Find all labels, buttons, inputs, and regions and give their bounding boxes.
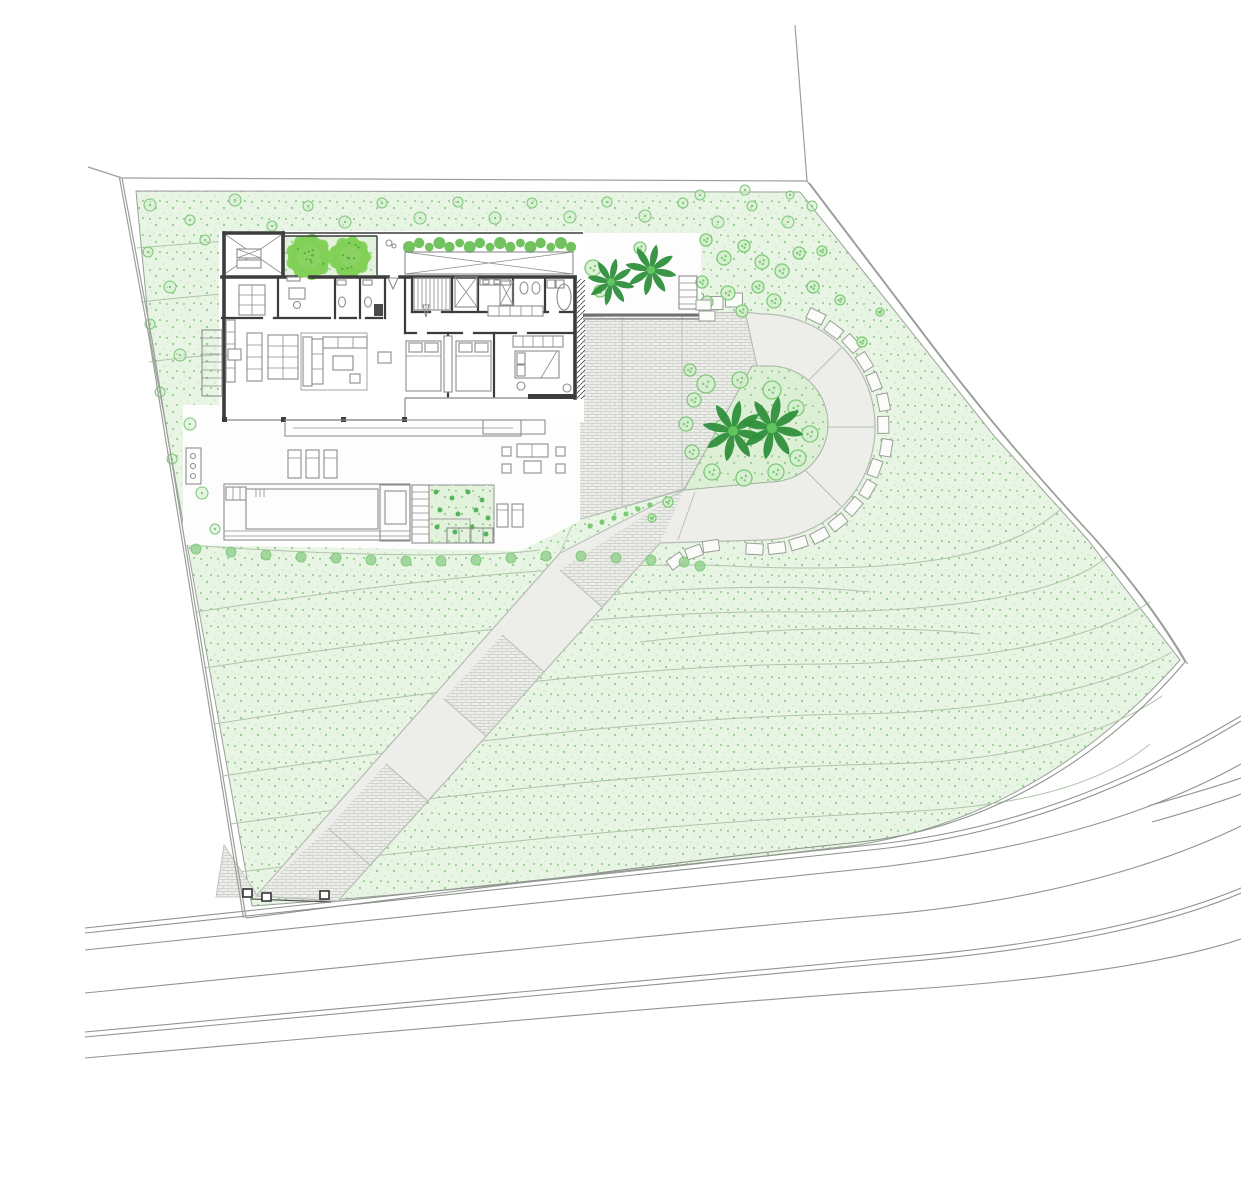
planting-bed xyxy=(429,485,494,543)
dining-table xyxy=(268,335,298,379)
sun-loungers xyxy=(288,450,337,478)
wardrobe-row xyxy=(488,306,543,316)
insulation-hatch-strip xyxy=(577,279,585,399)
bedroom-1 xyxy=(406,341,441,391)
breakfast-table xyxy=(239,285,265,315)
sliding-door-bar xyxy=(528,394,575,399)
closet-column xyxy=(444,336,452,392)
site-plan-canvas xyxy=(0,0,1241,1178)
bedroom-2 xyxy=(456,341,491,391)
house-footprint xyxy=(219,231,584,422)
